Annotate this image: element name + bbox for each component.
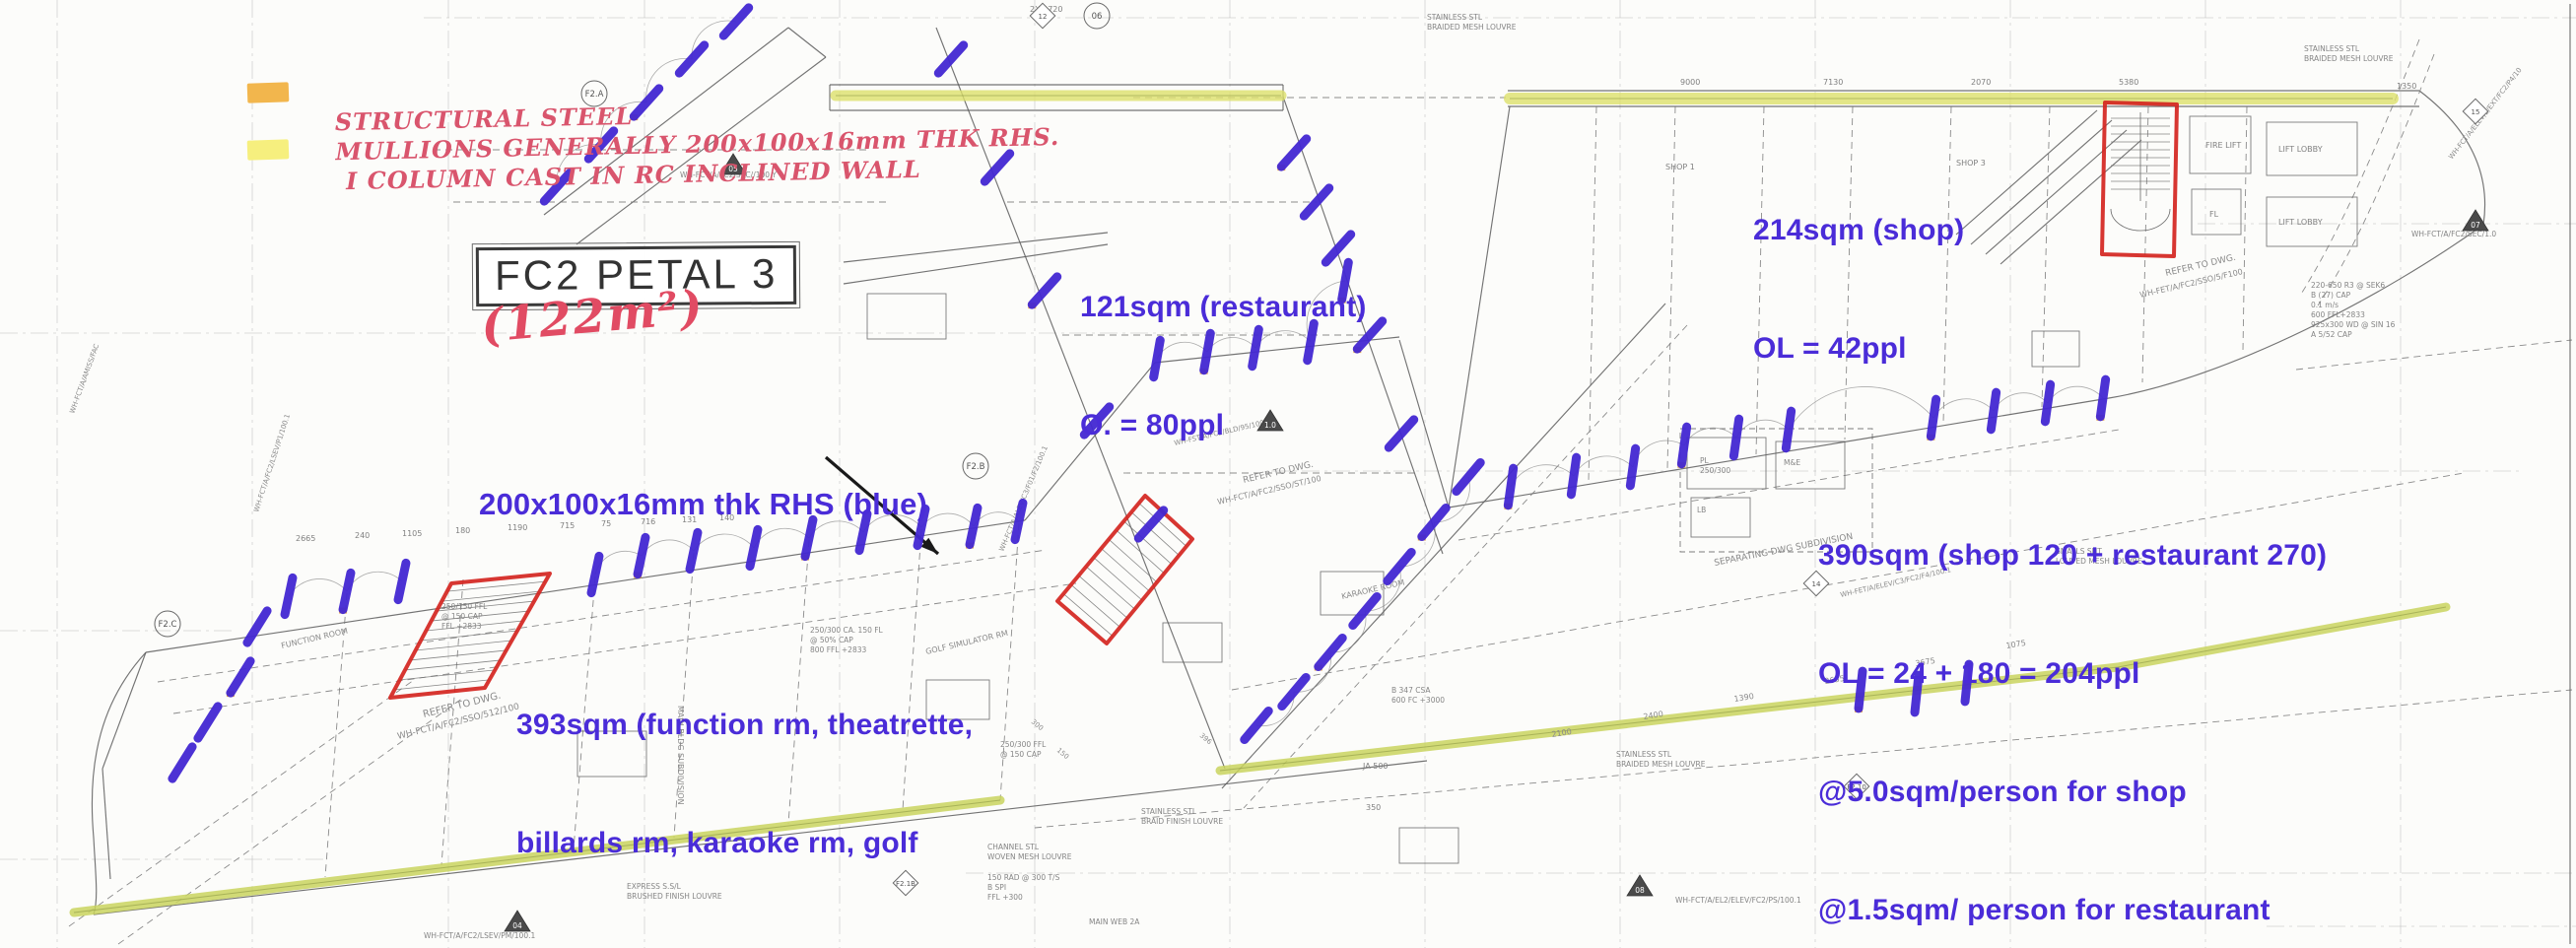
stair-box-topright	[2102, 102, 2177, 256]
mullion-tick	[723, 8, 748, 35]
mullion-tick	[285, 577, 293, 614]
micro-label: STAINLESS STL	[1427, 13, 1483, 22]
micro-label: CHANNEL STL	[987, 843, 1040, 851]
note-shop-214sqm: 214sqm (shop) OL = 42ppl	[1753, 132, 1964, 447]
mullion-tick	[247, 611, 267, 643]
wall-curve	[2318, 54, 2434, 305]
micro-label: PL	[1700, 456, 1710, 465]
micro-label: A 5/52 CAP	[2311, 330, 2352, 339]
micro-label: STAINLESS STL	[2304, 44, 2360, 53]
micro-label: STAINLESS STL	[1141, 807, 1197, 816]
wall-line	[2243, 106, 2247, 351]
wall-curve	[92, 652, 146, 914]
mullion-tick	[1991, 392, 1996, 430]
micro-label: B 347 CSA	[1391, 686, 1431, 695]
micro-label: B SPI	[987, 883, 1006, 892]
mullion-tick	[679, 45, 704, 73]
micro-label: 2665	[296, 534, 315, 543]
mullion-tick	[970, 508, 978, 544]
note-mixed-390sqm: 390sqm (shop 120 + restaurant 270) OL = …	[1818, 457, 2327, 948]
ref-symbol-label: 06	[1092, 12, 1103, 22]
micro-label: BRAIDED MESH LOUVRE	[1427, 23, 1517, 32]
stair-tread	[1102, 549, 1150, 592]
mullion-tick	[231, 661, 250, 693]
note-line: 214sqm (shop)	[1753, 211, 1964, 250]
micro-label: MAIN WEB 2A	[1089, 917, 1140, 926]
micro-label: 250/300	[1700, 466, 1730, 475]
note-line: billards rm, karaoke rm, golf	[516, 824, 973, 863]
wall-line	[2000, 140, 2141, 264]
note-rhs-mullion: 200x100x16mm thk RHS (blue)	[479, 406, 927, 603]
stair-tread	[410, 650, 506, 660]
ref-symbol-label: F2.B	[967, 462, 985, 472]
micro-label: 180	[455, 526, 470, 535]
micro-label: BRAIDED MESH LOUVRE	[1616, 760, 1706, 769]
mullion-tick	[198, 707, 218, 738]
mullion-tick	[2045, 384, 2050, 422]
mullion-tick	[1353, 596, 1377, 625]
wall-line	[1449, 106, 1510, 508]
handwritten-note: STRUCTURAL STEEL MULLIONS GENERALLY 200x…	[298, 63, 1061, 227]
room-box	[1163, 623, 1222, 662]
wall-curve	[2300, 39, 2419, 296]
stair-tread	[1079, 576, 1128, 618]
note-line: 390sqm (shop 120 + restaurant 270)	[1818, 536, 2327, 576]
micro-label: WH-FCT/A/EL2/ELEV/FC2/PS/100.1	[1675, 896, 1801, 905]
note-line: O. = 80ppl	[1080, 406, 1367, 445]
micro-label: LIFT LOBBY	[2278, 145, 2323, 154]
note-line: 393sqm (function rm, theatrette,	[516, 706, 973, 745]
micro-label: @ 150 CAP	[1000, 750, 1042, 759]
micro-label: FL	[2209, 210, 2219, 219]
facade-scallop	[289, 578, 347, 596]
mullion-tick	[1733, 419, 1738, 456]
stair-tread	[416, 641, 512, 650]
micro-label: FUNCTION ROOM	[280, 627, 348, 650]
note-line: @1.5sqm/ person for restaurant	[1818, 891, 2327, 930]
micro-label: 150	[1055, 746, 1070, 761]
mullion-tick	[1681, 427, 1686, 464]
micro-label: 600 FFL+2833	[2311, 310, 2365, 319]
micro-label: 600 FC +3000	[1391, 696, 1445, 705]
stair-tread	[1094, 558, 1142, 600]
mullion-tick	[1457, 462, 1480, 491]
micro-label: @ 150 CAP	[441, 612, 483, 621]
wall-line	[102, 769, 110, 879]
note-function-393sqm: 393sqm (function rm, theatrette, billard…	[516, 627, 973, 948]
micro-label: 240	[355, 531, 370, 540]
stair-arc	[2111, 209, 2170, 231]
micro-label: FFL +300	[987, 893, 1023, 902]
mullion-tick	[343, 573, 351, 609]
mullion-tick	[1032, 277, 1056, 305]
micro-label: 1390	[1733, 692, 1755, 704]
ref-symbol-label: 07	[2471, 221, 2480, 230]
stair-tread	[400, 670, 496, 680]
micro-label: 1350	[2397, 82, 2416, 91]
stair-tread	[405, 660, 501, 670]
micro-label: 1105	[402, 529, 422, 538]
micro-label: FIRE LIFT	[2205, 141, 2241, 150]
stair-tread	[1086, 567, 1134, 609]
wall-line	[1956, 110, 2097, 235]
ref-symbol-label: F2.C	[159, 620, 177, 630]
micro-label: B (27) CAP	[2311, 291, 2351, 300]
micro-label: LB	[1697, 506, 1706, 514]
micro-label: WH-FCT/A/FC2/LSEV/P1/100.1	[252, 413, 292, 513]
room-box	[1399, 828, 1458, 863]
room-box	[867, 294, 946, 339]
note-line: OL = 42ppl	[1753, 329, 1964, 369]
wall-line	[844, 244, 1108, 284]
room-box	[2032, 331, 2079, 367]
scanned-floorplan-page: 250/150 FFL@ 150 CAPFFL +2833250/300 CA.…	[0, 0, 2576, 948]
micro-label: 2070	[1971, 78, 1991, 87]
micro-label: 250/300 FFL	[1000, 740, 1047, 749]
mullion-tick	[1630, 448, 1635, 486]
ref-symbol-label: 15	[2472, 108, 2480, 116]
mullion-tick	[1508, 468, 1513, 506]
mullion-tick	[1422, 508, 1446, 536]
micro-label: WOVEN MESH LOUVRE	[987, 852, 1072, 861]
note-restaurant-121sqm: 121sqm (restaurant) O. = 80ppl	[1080, 209, 1367, 524]
mullion-tick	[1245, 711, 1268, 739]
micro-label: 7130	[1823, 78, 1843, 87]
wall-line	[788, 28, 826, 57]
mullion-tick	[2100, 379, 2105, 417]
micro-label: LIFT LOBBY	[2278, 218, 2323, 227]
facade-scallop	[1574, 456, 1633, 476]
note-line: @5.0sqm/person for shop	[1818, 773, 2327, 812]
facade-scallop	[1994, 393, 2048, 411]
mullion-tick	[1319, 638, 1342, 666]
micro-label: 350	[1366, 803, 1381, 812]
facade-scallop	[1684, 428, 1736, 445]
mullion-tick	[172, 747, 192, 779]
micro-label: 925x300 WD @ SIN 16	[2311, 320, 2396, 329]
note-line: 121sqm (restaurant)	[1080, 288, 1367, 327]
micro-label: STAINLESS STL	[1616, 750, 1672, 759]
micro-label: JA 500	[1362, 762, 1389, 771]
facade-scallop	[347, 572, 402, 591]
micro-label: 0.1 m/s	[2311, 301, 2339, 309]
micro-label: 250/150 FFL	[441, 602, 488, 611]
wall-line	[844, 233, 1108, 262]
legend-yellow-highlight-swatch	[247, 139, 290, 160]
wall-line	[2296, 340, 2572, 370]
micro-label: SHOP 1	[1665, 163, 1695, 171]
micro-label: FFL +2833	[441, 622, 482, 631]
micro-label: 150 RAD @ 300 T/S	[987, 873, 1060, 882]
micro-label: M&E	[1784, 458, 1800, 467]
micro-label: 9000	[1680, 78, 1700, 87]
micro-label: 220-650 R3 @ SEK6	[2311, 281, 2385, 290]
stair-tread	[421, 631, 517, 641]
ref-symbol-label: 12	[1039, 13, 1048, 21]
facade-scallop	[921, 513, 974, 527]
micro-label: 300	[1030, 717, 1045, 732]
wall-line	[2042, 106, 2050, 407]
mullion-tick	[1571, 457, 1576, 495]
note-line: OL = 24 + 180 = 204ppl	[1818, 654, 2327, 694]
legend-orange-highlight-swatch	[247, 82, 290, 102]
wall-line	[1667, 106, 1675, 469]
note-line: 200x100x16mm thk RHS (blue)	[479, 485, 927, 524]
micro-label: WH-FCT/A/AMISS/FAC	[68, 343, 101, 415]
micro-label: 2100	[1551, 727, 1573, 739]
room-box	[1691, 498, 1750, 537]
stair-tread	[1109, 539, 1157, 582]
micro-label: 5380	[2119, 78, 2138, 87]
facade-scallop	[1633, 440, 1684, 467]
micro-label: BRAID FINISH LOUVRE	[1141, 817, 1223, 826]
ref-symbol-label: 08	[1635, 886, 1645, 895]
wall-curve	[2109, 225, 2483, 398]
wall-line	[2142, 106, 2148, 382]
note-line: simulator rm)	[516, 942, 973, 948]
mullion-tick	[398, 563, 406, 599]
mullion-tick	[1388, 552, 1411, 580]
wall-line	[1971, 120, 2112, 244]
mullion-tick	[1389, 420, 1413, 447]
micro-label: BRAIDED MESH LOUVRE	[2304, 54, 2394, 63]
